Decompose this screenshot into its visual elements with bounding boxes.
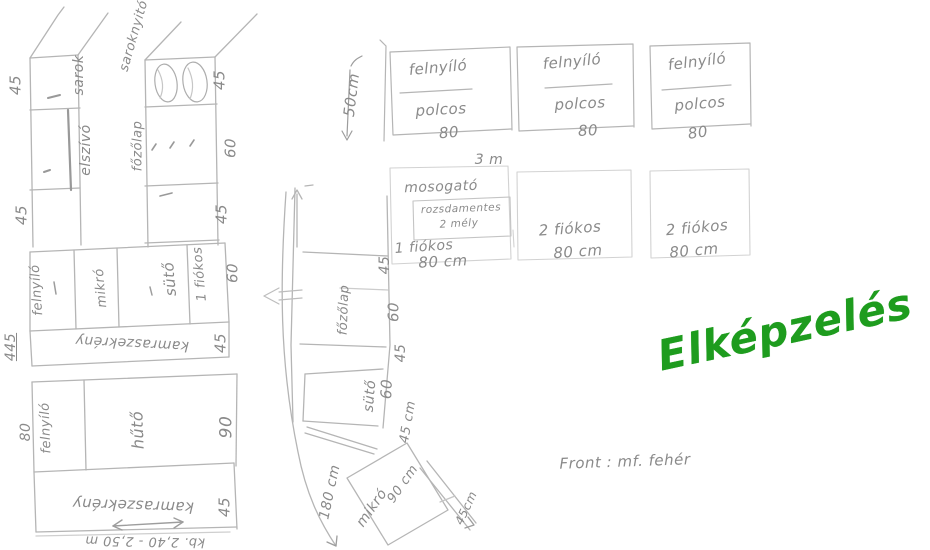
unit3-drawer-label: 2 fiókos — [665, 218, 729, 238]
dim-45-strip2: 45 — [394, 344, 408, 363]
scanned-kitchen-sketch: felnyílópolcos80felnyílópolcos80felnyíló… — [0, 0, 930, 550]
concept-title: Elképzelés — [654, 283, 916, 378]
dim-45-left-mid: 45 — [15, 205, 30, 225]
unit2-drawer-label: 2 fiókos — [538, 219, 602, 238]
dim-45cm-oven: 45 cm — [398, 400, 418, 445]
cabinet3-width: 80 — [687, 124, 709, 142]
unit3-width: 80 cm — [669, 241, 719, 260]
cabinet1-width: 80 — [438, 125, 459, 142]
fridge-label: hűtő — [129, 411, 146, 450]
cabinet3-type-label: felnyíló — [667, 51, 727, 73]
row-flipup-label: felnyíló — [29, 264, 46, 316]
run-length-dim: 3 m — [475, 153, 504, 167]
corner-label: sarok — [72, 55, 86, 96]
dim-60-row: 60 — [226, 263, 241, 283]
cabinet2-type-label: felnyíló — [542, 52, 602, 72]
unit1-width: 80 cm — [418, 253, 468, 271]
sink-depth-label: 2 mély — [439, 218, 478, 231]
dim-180cm-wall: 180 cm — [317, 463, 342, 520]
cabinet2-width: 80 — [578, 123, 599, 139]
oven1-label: sütő — [161, 261, 179, 297]
dim-45-strip1: 45 — [378, 256, 392, 275]
dim-60-strip: 60 — [387, 302, 402, 322]
front-finish-note: Front : mf. fehér — [559, 452, 690, 472]
dim-90cm-diag: 90 cm — [385, 463, 420, 506]
cabinet3-shelf-label: polcos — [674, 94, 726, 113]
cabinet1-shelf-label: polcos — [415, 101, 467, 119]
hob1-label: főzőlap — [132, 121, 145, 172]
dim-60-oven: 60 — [379, 379, 395, 400]
hood-label: elszívó — [79, 124, 93, 175]
dim-45-col2-top: 45 — [213, 70, 228, 90]
dim-45-top-left: 45 — [9, 75, 24, 95]
hob2-label: főzőlap — [337, 284, 352, 335]
sink-material-label: rozsdamentes — [421, 202, 502, 215]
cabinet-height-dim: 50cm — [342, 72, 362, 117]
pantry2-label: kamraszekrény — [72, 495, 194, 514]
dim-80-bottom: 80 — [19, 423, 33, 442]
dim-45-pantry2: 45 — [218, 497, 233, 517]
cabinet2-shelf-label: polcos — [554, 95, 606, 113]
dim-45-col2-mid: 45 — [215, 204, 230, 224]
unit2-width: 80 cm — [553, 243, 603, 261]
cabinet1-type-label: felnyíló — [408, 58, 468, 78]
dim-90-fridge: 90 — [219, 416, 236, 439]
dim-60-col2: 60 — [224, 138, 239, 158]
length-note: kb. 2,40 - 2,50 m — [85, 533, 205, 548]
flipup-bottom-label: felnyíló — [39, 402, 54, 454]
microwave2-label: mikró — [354, 487, 390, 530]
oven2-label: sütő — [362, 379, 379, 412]
pantry1-label: kamraszekrény — [75, 333, 190, 353]
dim-445-total: 445 — [4, 333, 18, 361]
sink-label: mosogató — [404, 179, 478, 196]
dim-45cm-diag: 45cm — [453, 489, 479, 526]
sketch-labels: felnyílópolcos80felnyílópolcos80felnyíló… — [0, 0, 930, 550]
microwave-label: mikró — [93, 268, 109, 309]
dim-45-pantry1: 45 — [214, 333, 229, 353]
row-drawer-label: 1 fiókos — [191, 246, 209, 302]
corner-unit-label: saroknyitó — [118, 0, 151, 73]
